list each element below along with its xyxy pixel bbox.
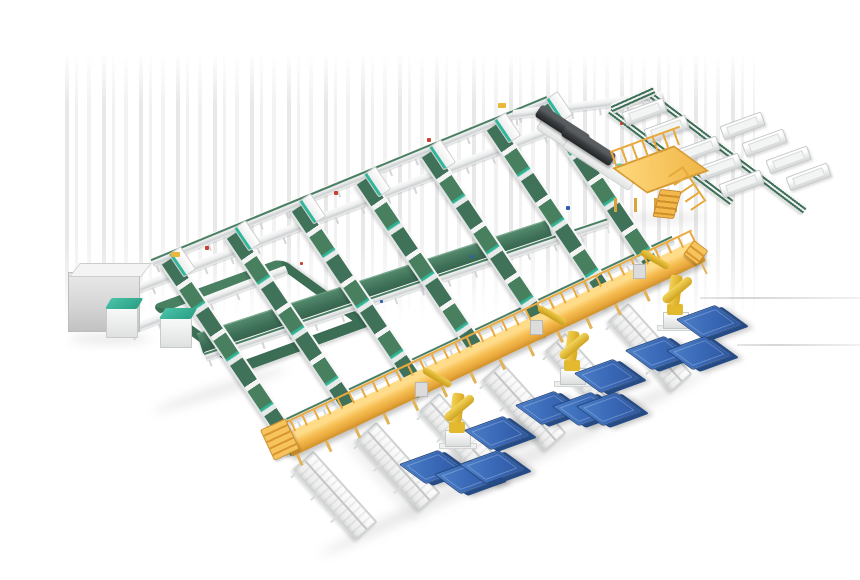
- palletizing-robot-arm-wrist: [415, 382, 428, 397]
- accent-marker: [334, 191, 338, 195]
- render-description: 3D isometric render of an automated parc…: [0, 0, 1, 1]
- access-platform-pstairs: [652, 189, 681, 219]
- accent-marker: [498, 103, 506, 108]
- accent-marker: [566, 206, 570, 210]
- accent-marker: [427, 138, 431, 142]
- discharge-trough-table: [785, 162, 831, 191]
- accent-marker: [380, 300, 383, 303]
- accent-marker: [620, 122, 623, 125]
- palletizing-robot-arm-base: [564, 360, 580, 371]
- control-cabinet-small: [160, 316, 192, 348]
- accent-marker: [171, 252, 180, 257]
- accent-marker: [470, 255, 473, 258]
- facility-render: 3D isometric render of an automated parc…: [0, 0, 860, 580]
- accent-marker: [300, 262, 303, 265]
- palletizing-robot-arm-wrist: [530, 320, 543, 335]
- floor-shadow-line: [737, 344, 860, 346]
- palletizing-robot-arm-base: [667, 304, 683, 315]
- access-platform: [604, 152, 704, 218]
- palletizing-robot-arm-wrist: [633, 264, 646, 279]
- accent-marker: [205, 246, 209, 250]
- control-cabinet-small: [106, 306, 138, 338]
- floor-shadow-line: [700, 297, 860, 299]
- palletizing-robot-arm-base: [449, 422, 465, 433]
